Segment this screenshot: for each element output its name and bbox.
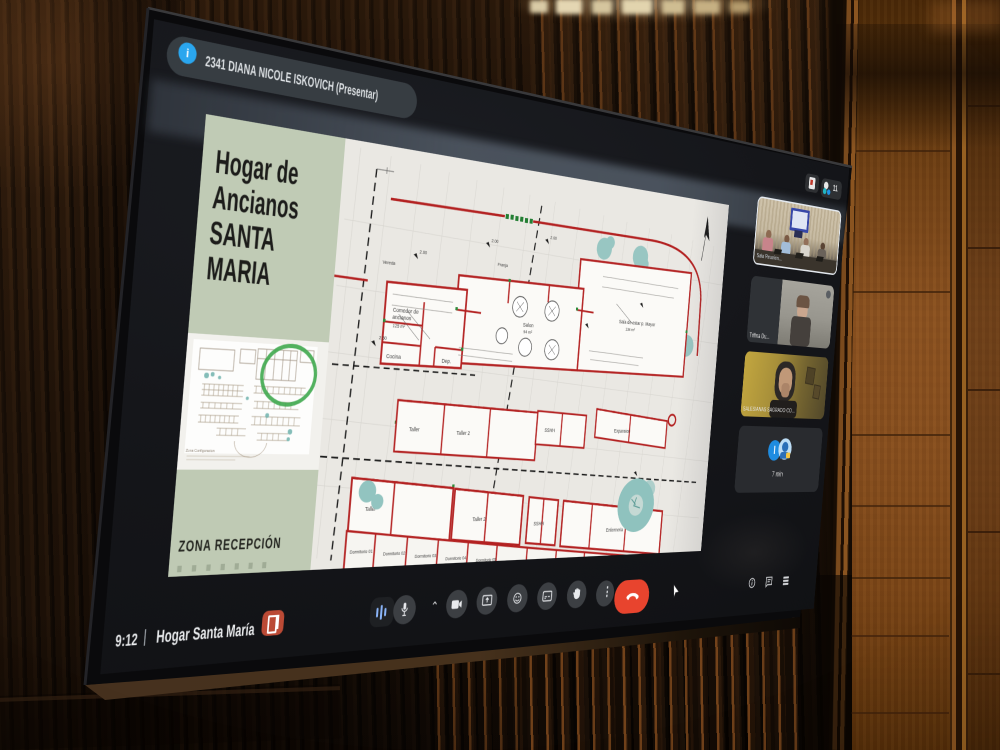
svg-text:Cocina: Cocina [386,354,401,361]
svg-text:Dormitorio 03: Dormitorio 03 [414,554,436,560]
svg-text:134 m²: 134 m² [625,327,635,333]
svg-text:Dormitorio 02: Dormitorio 02 [383,551,406,557]
svg-text:Salon: Salon [523,322,534,329]
svg-text:Dep.: Dep. [441,358,451,365]
svg-text:Taller: Taller [409,427,421,433]
svg-text:2.00: 2.00 [419,250,427,256]
svg-text:Dormitorio 04: Dormitorio 04 [445,556,466,562]
svg-text:Taller 2: Taller 2 [456,430,470,436]
svg-text:2.50: 2.50 [379,336,387,342]
svg-text:2.00: 2.00 [491,239,498,245]
svg-text:Franja: Franja [497,262,508,268]
svg-text:Enfermeria: Enfermeria [606,527,624,533]
svg-text:125 m²: 125 m² [392,324,405,330]
svg-text:SSHH: SSHH [533,521,544,527]
svg-text:94 m²: 94 m² [523,330,532,336]
svg-text:SSHH: SSHH [544,428,555,434]
svg-text:Dormitorio 01: Dormitorio 01 [349,549,372,555]
svg-text:Expansion: Expansion [614,429,631,435]
svg-text:2.00: 2.00 [550,236,557,242]
svg-text:Zona Configuracion: Zona Configuracion [186,448,215,453]
svg-text:Taller 2: Taller 2 [472,517,486,523]
